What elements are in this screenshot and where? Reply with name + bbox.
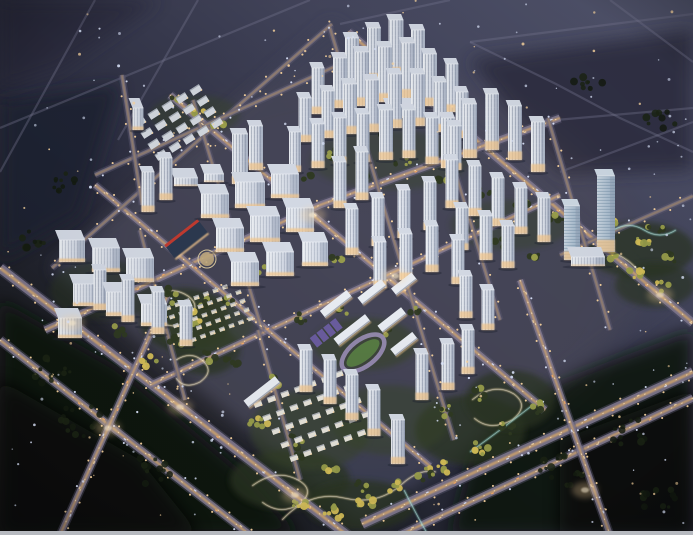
aerial-city-render (0, 0, 693, 535)
vignette-overlay (0, 0, 693, 535)
bottom-edge (0, 531, 693, 535)
vignette (0, 0, 693, 535)
scene-svg (0, 0, 693, 535)
bottom-edge-bar (0, 531, 693, 535)
